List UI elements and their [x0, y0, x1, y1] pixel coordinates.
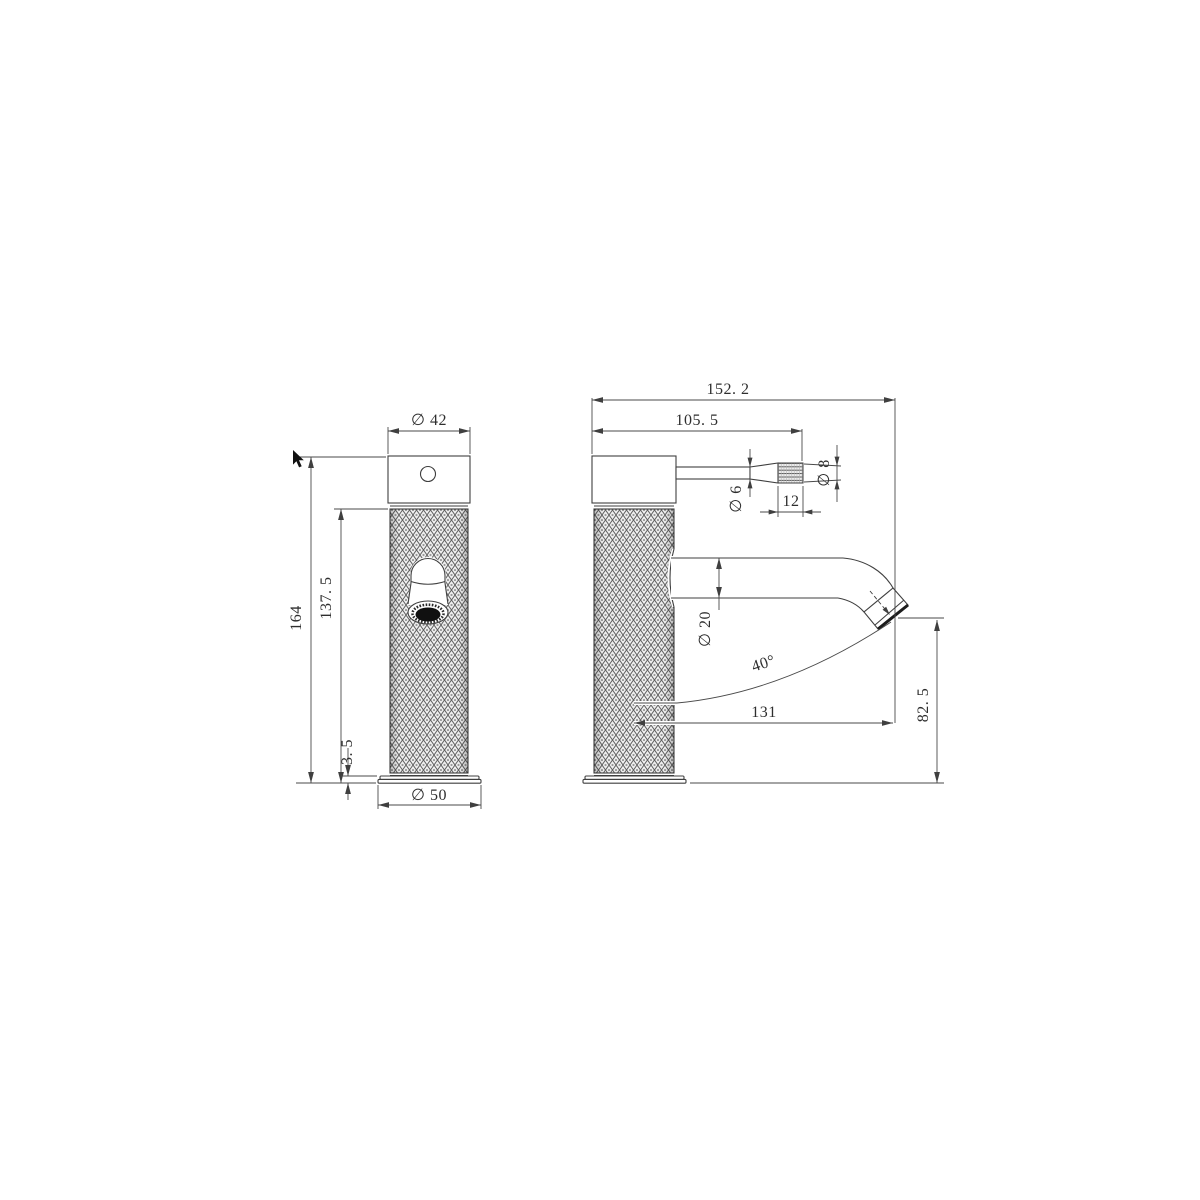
dim-outlet-height-label: 82. 5 [915, 688, 932, 723]
handle-grip-knurl [778, 463, 803, 483]
dim-base-diameter: ∅ 50 [378, 785, 481, 809]
dim-overall-height-label: 164 [288, 605, 305, 631]
side-handle-lever [676, 463, 803, 483]
dim-cap-diameter: ∅ 42 [388, 412, 470, 454]
dim-grip-diameter: ∅ 8 [804, 445, 841, 502]
dim-rod-diameter: ∅ 6 [728, 449, 752, 513]
dim-base-diameter-label: ∅ 50 [411, 787, 447, 804]
dim-handle-reach: 105. 5 [592, 412, 802, 461]
drawing-canvas: ∅ 42 164 137. 5 3. 5 [0, 0, 1200, 1200]
dim-grip-diameter-label: ∅ 8 [816, 459, 833, 486]
dim-outlet-height: 82. 5 [690, 618, 944, 783]
side-body-knurl [594, 509, 674, 773]
handle-rod-end-circle [421, 467, 436, 482]
aerator-opening [416, 608, 441, 622]
mouse-cursor-icon [293, 450, 304, 467]
side-top-cap [592, 456, 676, 506]
technical-drawing: ∅ 42 164 137. 5 3. 5 [0, 0, 1200, 1200]
dim-handle-reach-label: 105. 5 [676, 412, 719, 429]
dim-body-height-label: 137. 5 [318, 577, 335, 620]
dim-overall-height: 164 [288, 457, 386, 783]
dim-overall-length-label: 152. 2 [707, 381, 750, 398]
dim-base-plate-height: 3. 5 [339, 739, 377, 800]
dim-spout-diameter-label: ∅ 20 [697, 611, 714, 647]
dim-base-plate-height-label: 3. 5 [339, 739, 356, 765]
front-base-flange [378, 776, 481, 784]
dim-spout-reach-label: 131 [751, 704, 777, 721]
dim-grip-length-label: 12 [783, 493, 800, 510]
side-base-flange [583, 776, 686, 784]
front-view [378, 456, 481, 783]
dim-grip-length: 12 [760, 486, 821, 517]
side-view [583, 456, 908, 783]
front-body-knurl [390, 509, 468, 773]
dim-cap-diameter-label: ∅ 42 [411, 412, 447, 429]
dim-rod-diameter-label: ∅ 6 [728, 485, 745, 512]
front-spout [408, 557, 448, 624]
front-top-cap [388, 456, 470, 506]
dim-spout-angle-label: 40° [750, 652, 778, 676]
